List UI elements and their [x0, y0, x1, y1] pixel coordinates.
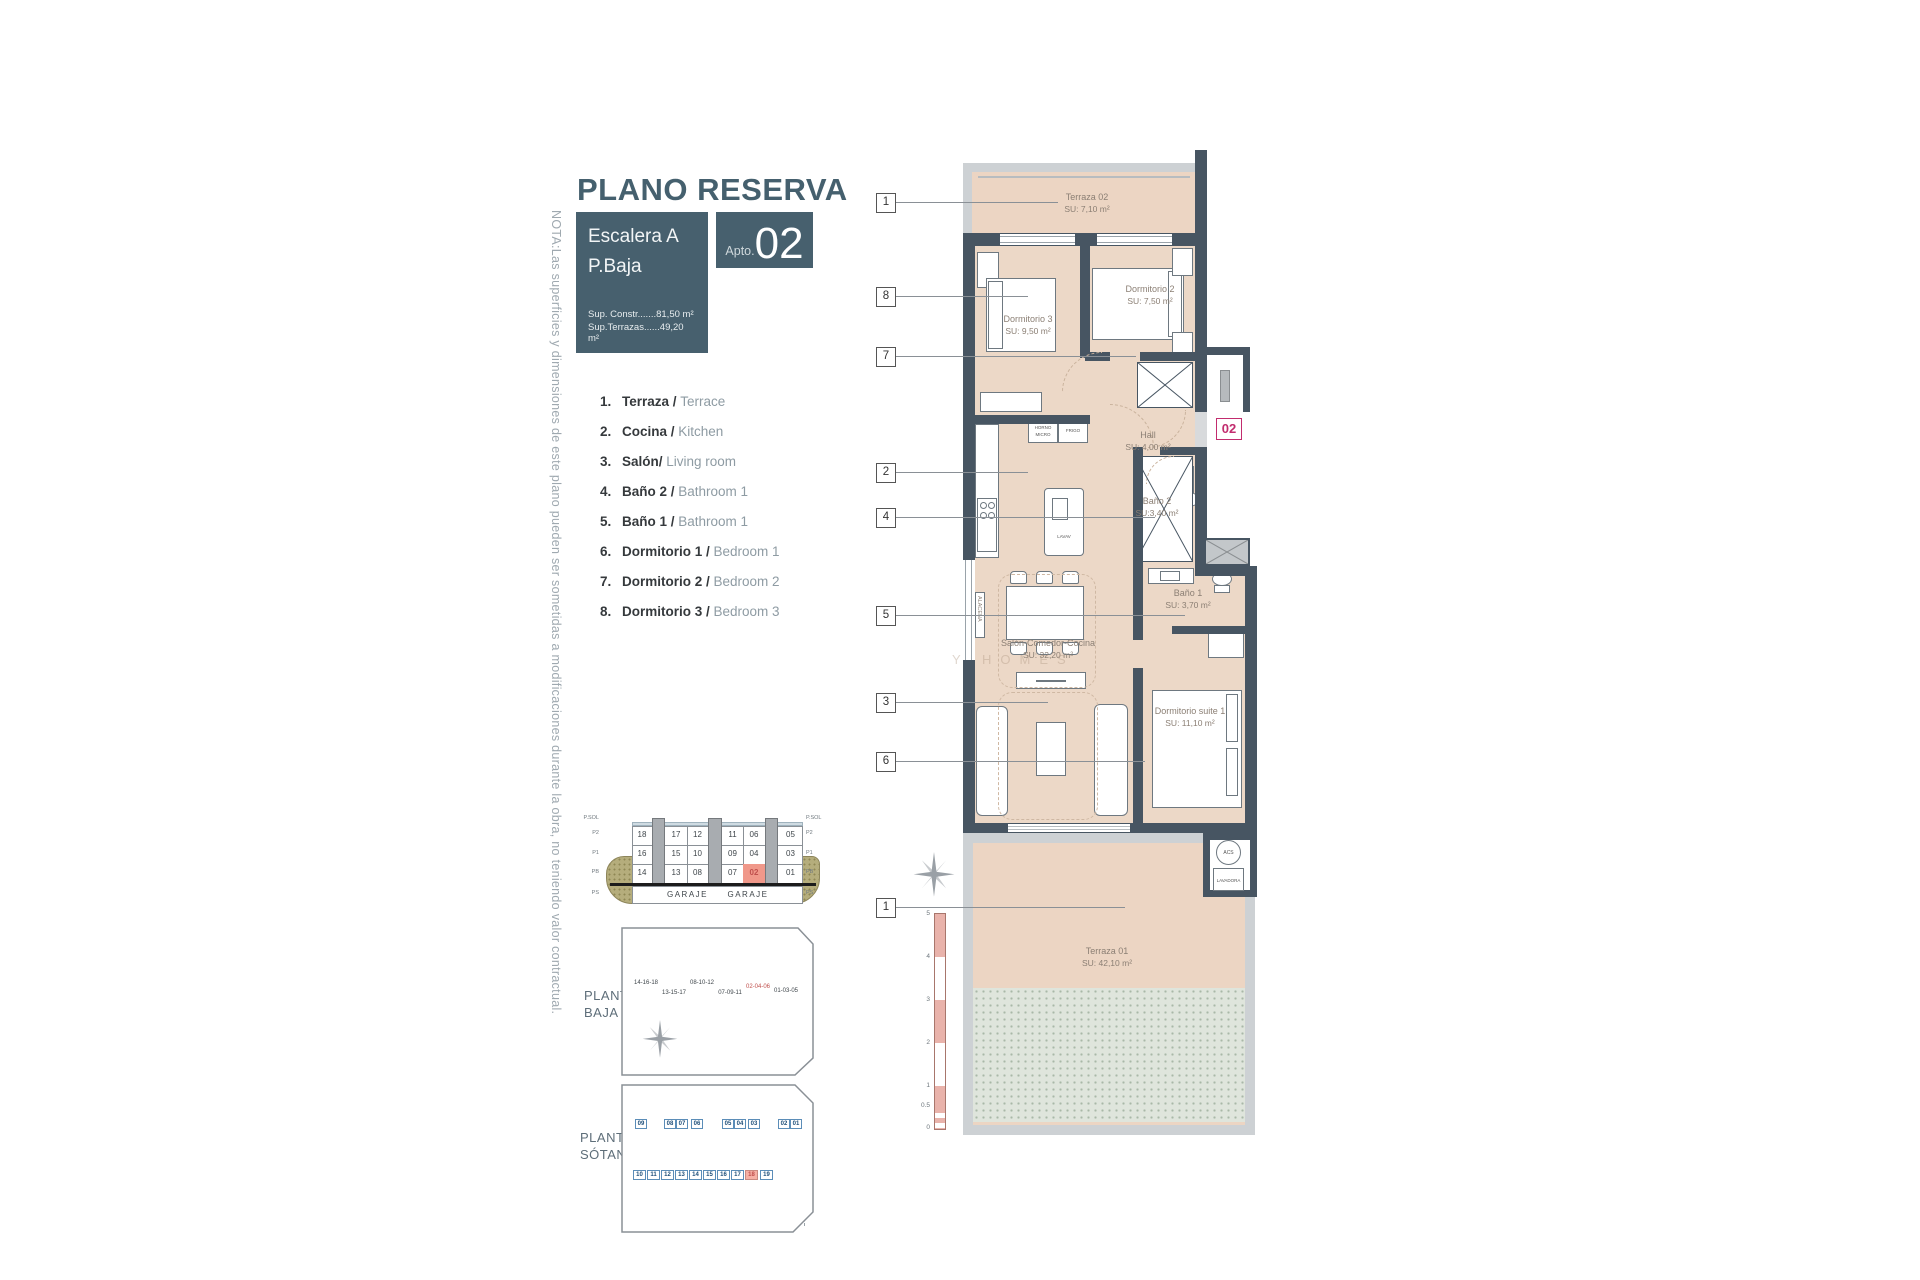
storage-badge: 06: [691, 1119, 703, 1129]
section-cell: 05: [778, 830, 803, 839]
baja-unit: 13-15-17: [658, 990, 690, 996]
callout-1-terraza: 1: [876, 193, 896, 213]
dining-zone: [998, 574, 1096, 688]
scale-tick: 0: [920, 1124, 930, 1131]
sliding-door: [1008, 824, 1130, 832]
escalera-label: Escalera A: [588, 222, 696, 252]
scale-tick: 4: [920, 953, 930, 960]
storage-badge: 03: [748, 1119, 760, 1129]
section-cell: 13: [665, 868, 687, 877]
level-label: P1: [806, 850, 824, 856]
entry-opening: [1195, 412, 1207, 447]
pillow: [988, 281, 1003, 349]
baja-unit: 07-09-11: [714, 990, 746, 996]
level-label: P.SOL: [581, 815, 599, 821]
terraza01-paved-zone: [973, 988, 1245, 1122]
wall-right-lower: [1245, 566, 1257, 833]
escalera-info-box: Escalera A P.Baja Sup. Constr.......81,5…: [576, 212, 708, 353]
hall-closet-x: [1137, 362, 1193, 408]
compass-icon: [640, 1020, 680, 1064]
legend-item-1: 1.Terraza / Terrace: [600, 394, 780, 424]
section-cell: 18: [632, 830, 652, 839]
stair-core: [652, 818, 665, 884]
wall-kitchen-top: [975, 415, 1090, 424]
legend-item-7: 7.Dormitorio 2 / Bedroom 2: [600, 574, 780, 604]
sup-constr: Sup. Constr.......81,50 m²: [588, 309, 696, 320]
parking-badge-highlight: 18: [745, 1170, 758, 1180]
scale-bar: [934, 913, 946, 1130]
legend-item-6: 6.Dormitorio 1 / Bedroom 1: [600, 544, 780, 574]
storage-badge: 02: [778, 1119, 790, 1129]
lavav-label: LAVAV: [1048, 534, 1080, 539]
baja-unit: 08-10-12: [686, 980, 718, 986]
wall-core-left-b: [1133, 668, 1143, 823]
level-label: P.SOL: [806, 815, 824, 821]
level-label: PS: [581, 890, 599, 896]
storage-badge: 04: [734, 1119, 746, 1129]
apto-number: 02: [755, 222, 804, 266]
room-label-bano1: Baño 1SU: 3,70 m²: [1165, 588, 1210, 611]
callout-6-dormitorio1: 6: [876, 752, 896, 772]
section-cell: 12: [687, 830, 708, 839]
plano-reserva-page: NOTA:Las superficies y dimensiones de es…: [0, 0, 1920, 1280]
room-label-dormitorio3: Dormitorio 3SU: 9,50 m²: [1003, 314, 1052, 337]
callout-2-cocina: 2: [876, 463, 896, 483]
callout-4-bano2: 4: [876, 508, 896, 528]
pillow: [1226, 694, 1238, 742]
elevator-x: [1206, 540, 1248, 564]
section-cell-highlight: 02: [743, 868, 765, 877]
room-label-dormitorio2: Dormitorio 2SU: 7,50 m²: [1125, 284, 1174, 307]
baja-unit: 01-03-05: [770, 988, 802, 994]
pillow: [1226, 748, 1238, 796]
callout-1-terraza01: 1: [876, 898, 896, 918]
living-zone: [998, 692, 1098, 820]
wall-left: [963, 233, 975, 833]
burner: [980, 502, 987, 509]
wall-bedroom-divider: [1080, 246, 1090, 358]
parking-badge: 14: [689, 1170, 702, 1180]
planta-label: P.Baja: [588, 252, 696, 282]
baja-unit: 14-16-18: [630, 980, 662, 986]
alacena-label: ALACENA: [976, 596, 982, 622]
wall-suite-top: [1172, 626, 1257, 634]
window: [1000, 234, 1075, 245]
suite-closet: [1208, 632, 1244, 658]
level-label: P1: [581, 850, 599, 856]
room-label-terraza02: Terraza 02SU: 7,10 m²: [1064, 192, 1109, 215]
garaje-label: GARAJE: [655, 890, 720, 899]
sofa: [1094, 704, 1128, 816]
section-cell: 15: [665, 849, 687, 858]
legend-item-3: 3.Salón/ Living room: [600, 454, 780, 484]
room-label-terraza01: Terraza 01SU: 42,10 m²: [1082, 946, 1132, 969]
sup-terrazas: Sup.Terrazas......49,20 m²: [588, 322, 696, 344]
parking-badge: 11: [647, 1170, 660, 1180]
section-cell: 09: [722, 849, 743, 858]
level-label: PB: [806, 869, 824, 875]
section-cell: 11: [722, 830, 743, 839]
legend-item-2: 2.Cocina / Kitchen: [600, 424, 780, 454]
scale-tick: 2: [920, 1039, 930, 1046]
stair-core: [765, 818, 778, 884]
scale-tick: 1: [920, 1082, 930, 1089]
callout-3-salon: 3: [876, 693, 896, 713]
closet-row: [980, 392, 1042, 412]
level-label: PS: [806, 890, 824, 896]
section-cell: 10: [687, 849, 708, 858]
section-cell: 14: [632, 868, 652, 877]
window: [963, 560, 975, 660]
callout-5-bano1: 5: [876, 606, 896, 626]
storage-badge: 07: [676, 1119, 688, 1129]
parking-badge: 16: [717, 1170, 730, 1180]
vertical-disclaimer-note: NOTA:Las superficies y dimensiones de es…: [549, 210, 563, 1130]
apto-label: Apto.: [725, 244, 754, 258]
section-cell: 16: [632, 849, 652, 858]
page-title: PLANO RESERVA: [577, 172, 848, 208]
section-cell: 17: [665, 830, 687, 839]
room-label-hall: HallSU: 4,00 m²: [1125, 430, 1170, 453]
section-cell: 06: [743, 830, 765, 839]
section-cell: 07: [722, 868, 743, 877]
parking-badge: 12: [661, 1170, 674, 1180]
garaje-label: GARAJE: [718, 890, 778, 899]
parking-badge: 13: [675, 1170, 688, 1180]
level-label: PB: [581, 869, 599, 875]
section-cell: 08: [687, 868, 708, 877]
wall-right-upper: [1195, 150, 1207, 412]
callout-8-dormitorio3: 8: [876, 287, 896, 307]
lavadora-unit: LAVADORA: [1213, 868, 1244, 891]
parking-badge: 15: [703, 1170, 716, 1180]
acs-unit: ACS: [1216, 840, 1241, 865]
scale-tick: 0.5: [916, 1102, 930, 1109]
apto-number-box: Apto.02: [716, 212, 813, 268]
window: [1097, 234, 1172, 245]
legend-item-5: 5.Baño 1 / Bathroom 1: [600, 514, 780, 544]
section-cell: 03: [778, 849, 803, 858]
parking-badge: 10: [633, 1170, 646, 1180]
level-label: P2: [806, 830, 824, 836]
room-legend: 1.Terraza / Terrace 2.Cocina / Kitchen 3…: [600, 394, 780, 634]
scale-tick: 3: [920, 996, 930, 1003]
callout-7-dormitorio2: 7: [876, 347, 896, 367]
storage-badge: 09: [635, 1119, 647, 1129]
stair-core: [708, 818, 722, 884]
section-cell: 01: [778, 868, 803, 877]
planta-sotano-outline: [620, 1083, 816, 1235]
lobby-door: [1220, 370, 1230, 402]
burner: [988, 502, 995, 509]
storage-badge: 08: [664, 1119, 676, 1129]
storage-badge: 05: [722, 1119, 734, 1129]
watermark: Y HOMES: [952, 652, 1075, 667]
scale-tick: 5: [920, 910, 930, 917]
legend-item-4: 4.Baño 2 / Bathroom 1: [600, 484, 780, 514]
wall-bed2-bottom-b: [1140, 352, 1195, 361]
bath1-sink-bowl: [1160, 571, 1180, 581]
wall-lobby-right: [1243, 347, 1250, 412]
section-cell: 04: [743, 849, 765, 858]
room-label-suite: Dormitorio suite 1SU: 11,10 m²: [1155, 706, 1226, 729]
parking-badge: 19: [760, 1170, 773, 1180]
compass-icon: [912, 852, 956, 904]
level-label: P2: [581, 830, 599, 836]
bath1-toilet-tank: [1214, 585, 1230, 593]
legend-item-8: 8.Dormitorio 3 / Bedroom 3: [600, 604, 780, 634]
unit-number-badge: 02: [1216, 418, 1242, 440]
room-label-bano2: Baño 2SU:3,40 m²: [1136, 496, 1179, 519]
storage-badge: 01: [790, 1119, 802, 1129]
wardrobe: [1172, 248, 1193, 276]
terraza02-balustrade: [978, 176, 1190, 178]
parking-badge: 17: [731, 1170, 744, 1180]
